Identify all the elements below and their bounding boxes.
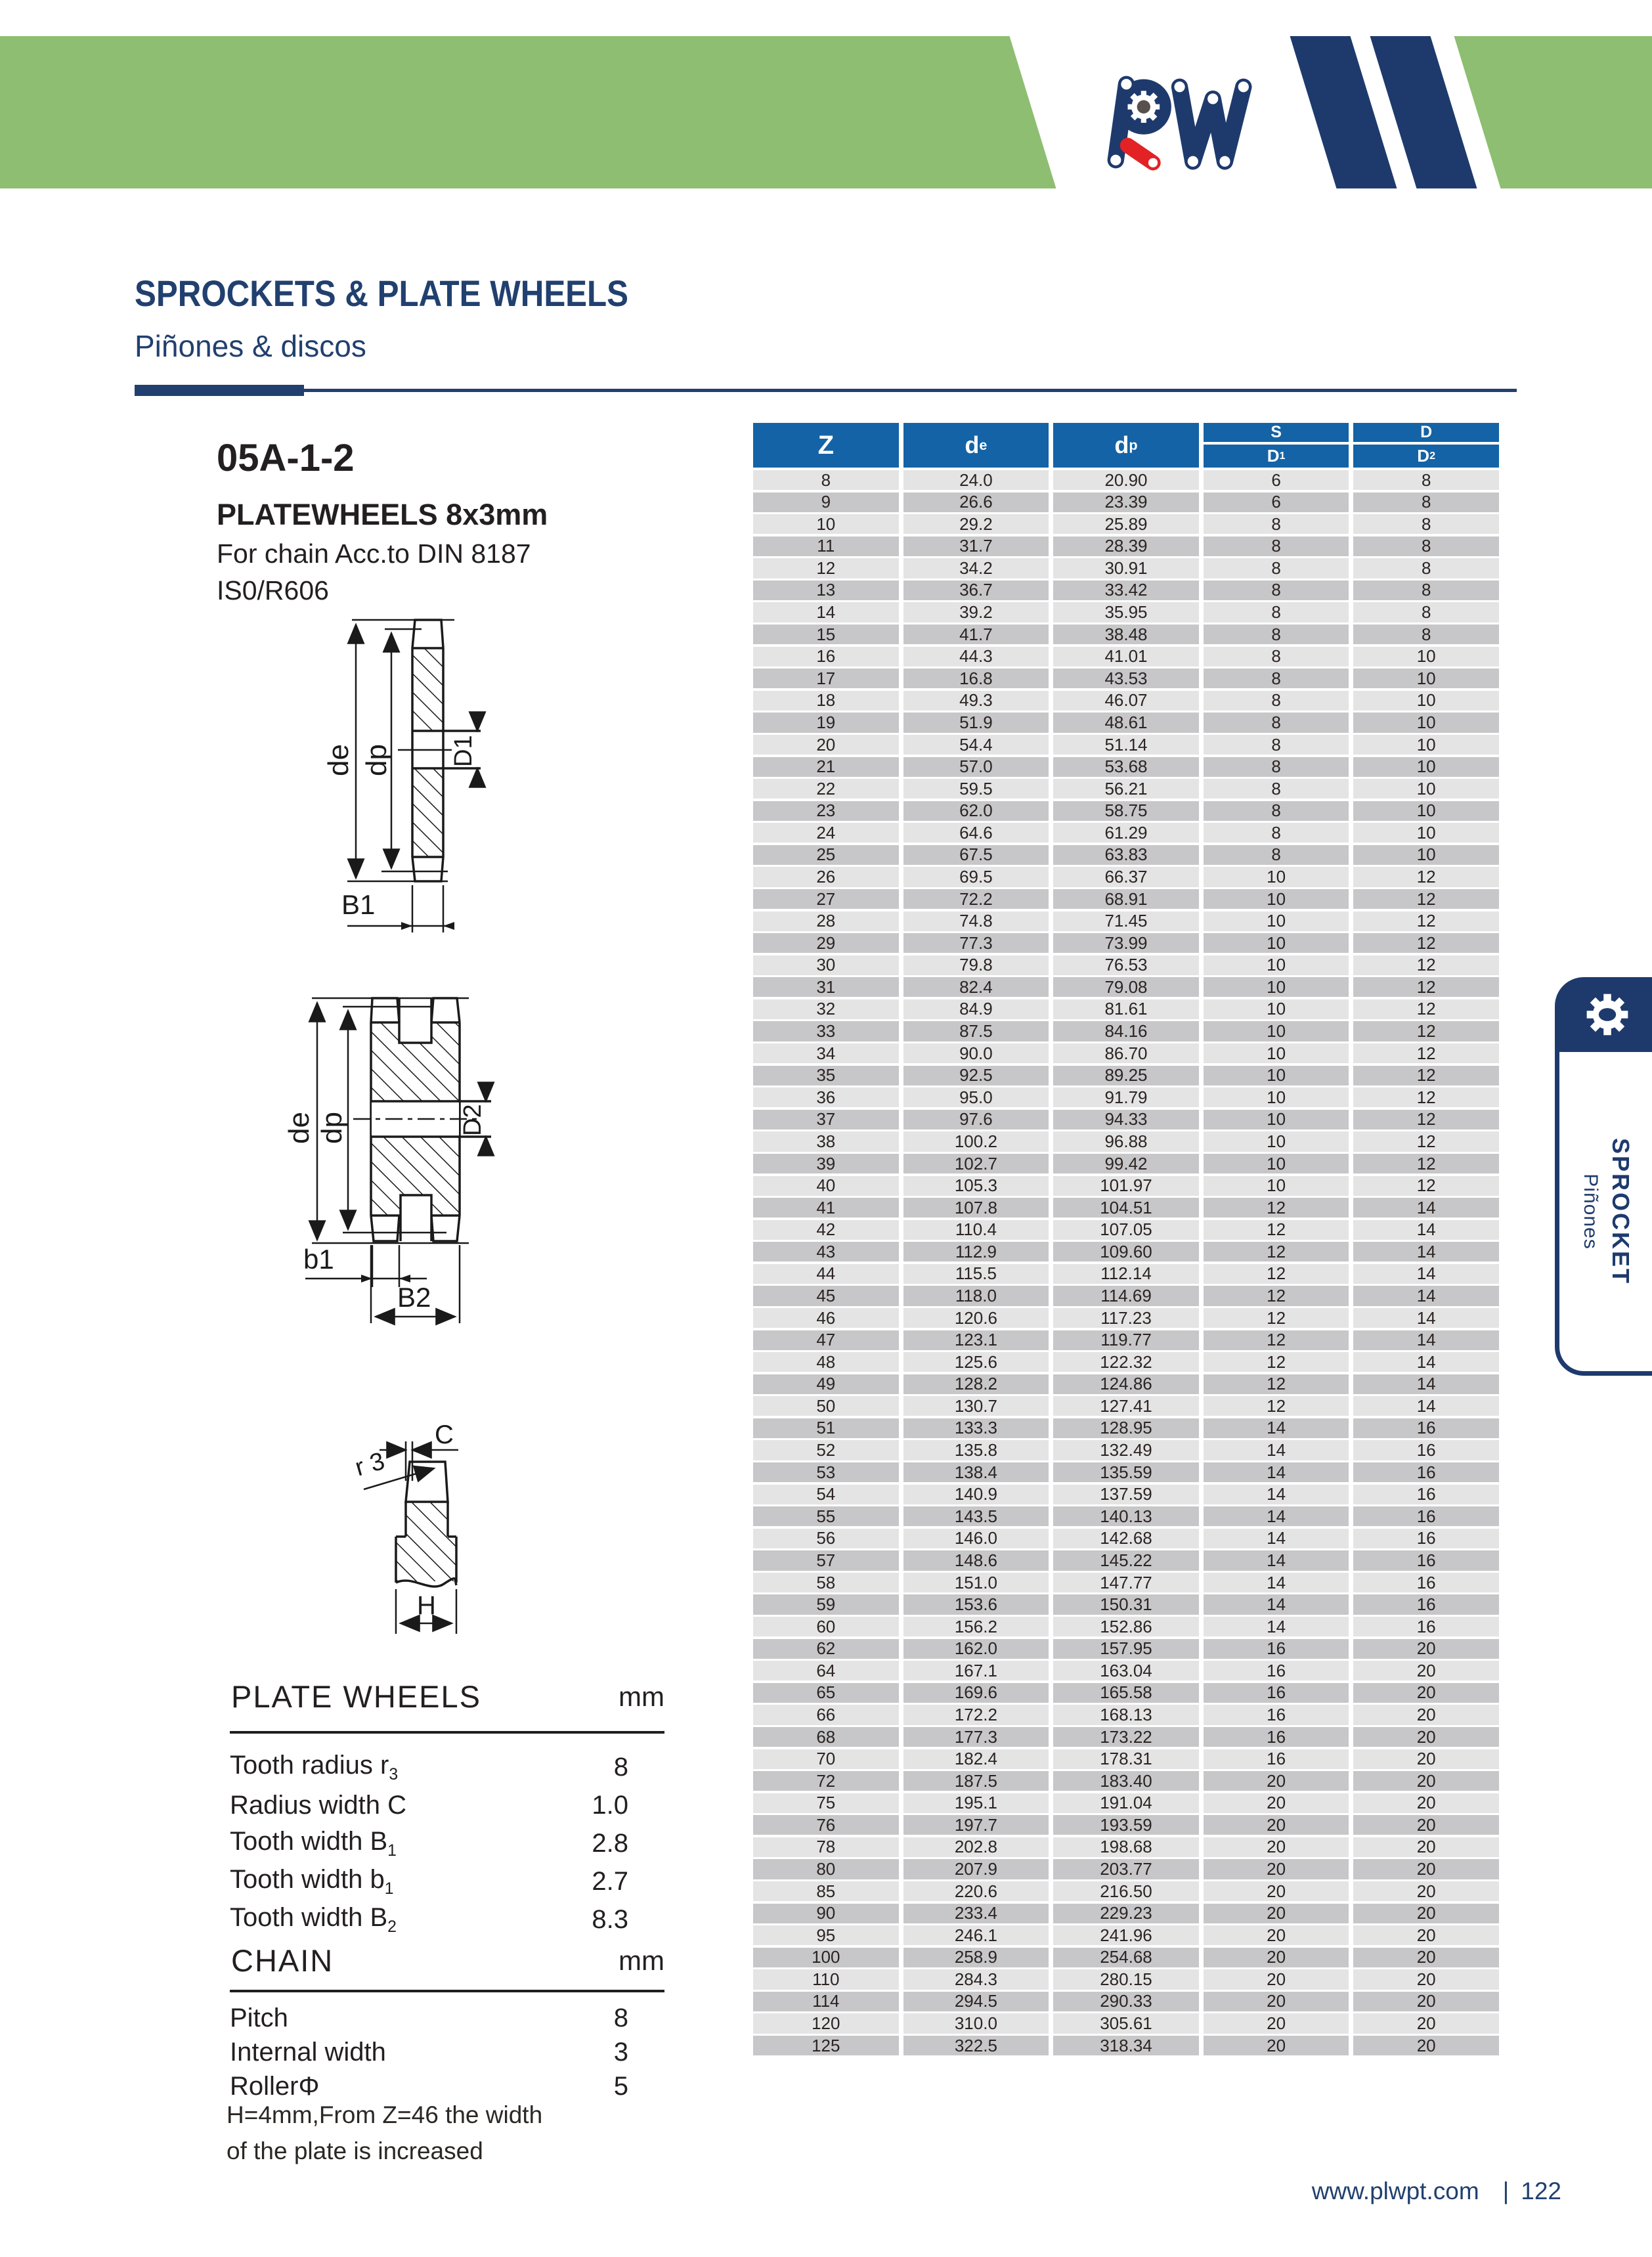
table-cell: 8 [1204,801,1349,821]
table-cell: 10 [1353,691,1499,711]
table-cell: 8 [1204,668,1349,688]
table-cell: 20 [1204,1771,1349,1791]
sidebar-tab-sprocket[interactable]: SPROCKET Piñones [1555,977,1652,1376]
table-cell: 16 [1204,1639,1349,1659]
table-cell: 20 [1353,1969,1499,1989]
table-row: 45118.0114.691214 [753,1286,1499,1305]
table-cell: 290.33 [1053,1992,1199,2011]
table-cell: 100.2 [903,1131,1049,1151]
table-cell: 35 [753,1066,899,1085]
header-s: S [1204,423,1349,442]
table-cell: 84.16 [1053,1021,1199,1041]
table-cell: 30 [753,955,899,975]
table-cell: 20 [753,735,899,755]
table-cell: 28 [753,911,899,931]
table-cell: 62.0 [903,801,1049,821]
product-code: 05A-1-2 [217,436,355,480]
table-cell: 18 [753,691,899,711]
table-cell: 157.95 [1053,1639,1199,1659]
table-cell: 258.9 [903,1948,1049,1967]
table-cell: 10 [1353,823,1499,843]
table-cell: 12 [1204,1330,1349,1350]
table-cell: 147.77 [1053,1573,1199,1592]
table-cell: 305.61 [1053,2013,1199,2033]
spec-label: Internal width [230,2038,386,2067]
table-cell: 100 [753,1948,899,1967]
dim-label-de: de [322,744,355,776]
table-cell: 163.04 [1053,1661,1199,1680]
table-cell: 120.6 [903,1308,1049,1328]
table-cell: 20 [1204,1815,1349,1835]
table-cell: 90.0 [903,1043,1049,1063]
table-cell: 14 [1204,1462,1349,1482]
table-cell: 95 [753,1925,899,1945]
table-cell: 12 [1353,1176,1499,1196]
table-row: 51133.3128.951416 [753,1418,1499,1438]
table-cell: 16 [1353,1529,1499,1548]
table-cell: 112.14 [1053,1264,1199,1284]
table-cell: 8 [1353,537,1499,556]
table-cell: 14 [1353,1308,1499,1328]
column-header-dp: dp [1053,423,1199,468]
spec-value: 8 [614,2004,664,2033]
table-cell: 14 [1353,1352,1499,1372]
table-cell: 10 [1353,668,1499,688]
table-cell: 26.6 [903,493,1049,512]
table-row: 70182.4178.311620 [753,1749,1499,1769]
table-cell: 73.99 [1053,933,1199,953]
table-row: 110284.3280.152020 [753,1969,1499,1989]
spec-label: Tooth width B2 [230,1903,397,1937]
table-cell: 20 [1353,1639,1499,1659]
table-row: 3695.091.791012 [753,1087,1499,1107]
dim-label-c: C [435,1420,454,1449]
table-row: 95246.1241.962020 [753,1925,1499,1945]
table-cell: 76.53 [1053,955,1199,975]
table-row: 1234.230.9188 [753,558,1499,578]
table-cell: 8 [1204,735,1349,755]
spec-row: Pitch8 [230,1999,664,2037]
table-row: 76197.7193.592020 [753,1815,1499,1835]
brand-logo [1098,72,1308,172]
page-subtitle: Piñones & discos [135,328,366,364]
spec-row: Tooth width B28.3 [230,1900,664,1939]
table-cell: 41.7 [903,625,1049,644]
double-sprocket-drawing: de dp D2 b1 B2 [250,985,578,1392]
table-cell: 31.7 [903,537,1049,556]
table-cell: 32 [753,999,899,1019]
table-cell: 8 [1353,493,1499,512]
table-cell: 20 [1353,2013,1499,2033]
spec-row: Tooth radius r38 [230,1748,664,1786]
table-cell: 12 [1353,1110,1499,1129]
table-cell: 47 [753,1330,899,1350]
table-cell: 64 [753,1661,899,1680]
table-row: 64167.1163.041620 [753,1661,1499,1680]
table-cell: 10 [1204,1154,1349,1173]
table-cell: 36.7 [903,581,1049,600]
table-cell: 20 [1204,1793,1349,1813]
table-cell: 143.5 [903,1506,1049,1526]
table-cell: 241.96 [1053,1925,1199,1945]
table-cell: 20 [1204,1904,1349,1923]
table-row: 3797.694.331012 [753,1110,1499,1129]
table-cell: 16 [1353,1418,1499,1438]
table-cell: 38 [753,1131,899,1151]
table-cell: 14 [1204,1440,1349,1460]
table-row: 41107.8104.511214 [753,1198,1499,1217]
table-cell: 20 [1353,1881,1499,1901]
table-row: 120310.0305.612020 [753,2013,1499,2033]
spec-label: RollerΦ [230,2072,319,2101]
sidebar-tab-subtitle: Piñones [1579,1173,1601,1249]
table-cell: 12 [1353,867,1499,887]
table-cell: 57 [753,1550,899,1570]
table-row: 1951.948.61810 [753,712,1499,732]
table-cell: 60 [753,1617,899,1636]
dim-label-h: H [417,1591,436,1620]
table-row: 114294.5290.332020 [753,1992,1499,2011]
table-cell: 14 [1204,1529,1349,1548]
table-row: 47123.1119.771214 [753,1330,1499,1350]
spec-row: Internal width3 [230,2033,664,2071]
table-cell: 20 [1353,1904,1499,1923]
table-cell: 20 [1353,1771,1499,1791]
table-cell: 168.13 [1053,1705,1199,1724]
table-cell: 10 [1204,999,1349,1019]
table-cell: 29 [753,933,899,953]
table-row: 1029.225.8988 [753,514,1499,534]
table-cell: 51.14 [1053,735,1199,755]
table-cell: 310.0 [903,2013,1049,2033]
table-cell: 94.33 [1053,1110,1199,1129]
table-cell: 10 [1204,867,1349,887]
table-row: 48125.6122.321214 [753,1352,1499,1372]
table-cell: 16 [1353,1440,1499,1460]
table-cell: 203.77 [1053,1859,1199,1879]
table-cell: 14 [1204,1506,1349,1526]
column-header-z: Z [753,423,899,468]
table-row: 72187.5183.402020 [753,1771,1499,1791]
table-cell: 17 [753,668,899,688]
footer-page-number: 122 [1521,2178,1561,2204]
table-cell: 8 [1353,602,1499,622]
table-cell: 16 [1353,1462,1499,1482]
table-cell: 105.3 [903,1176,1049,1196]
table-row: 57148.6145.221416 [753,1550,1499,1570]
table-cell: 10 [1204,1043,1349,1063]
single-sprocket-drawing: de dp D1 B1 [250,604,578,985]
table-cell: 8 [1204,514,1349,534]
table-cell: 10 [1204,955,1349,975]
table-row: 3387.584.161012 [753,1021,1499,1041]
header-d1: D1 [1204,445,1349,468]
table-row: 100258.9254.682020 [753,1948,1499,1967]
table-cell: 220.6 [903,1881,1049,1901]
table-row: 1849.346.07810 [753,691,1499,711]
table-cell: 135.8 [903,1440,1049,1460]
table-cell: 12 [1353,889,1499,909]
table-cell: 14 [1204,1573,1349,1592]
table-cell: 90 [753,1904,899,1923]
table-row: 42110.4107.051214 [753,1220,1499,1240]
table-cell: 8 [1204,602,1349,622]
table-cell: 20 [1353,1749,1499,1769]
table-cell: 197.7 [903,1815,1049,1835]
table-cell: 43.53 [1053,668,1199,688]
spec-label: Tooth width b1 [230,1865,394,1898]
table-cell: 10 [1204,1087,1349,1107]
table-cell: 20 [1204,2036,1349,2055]
table-cell: 14 [1353,1242,1499,1261]
table-cell: 198.68 [1053,1837,1199,1857]
table-cell: 12 [1353,999,1499,1019]
table-cell: 45 [753,1286,899,1305]
product-name: PLATEWHEELS 8x3mm [217,498,548,532]
table-cell: 150.31 [1053,1594,1199,1614]
dim-label-r3: r 3 [352,1447,387,1482]
table-cell: 16 [1204,1661,1349,1680]
dim-label-dp: dp [316,1112,348,1144]
table-cell: 85 [753,1881,899,1901]
table-cell: 66 [753,1705,899,1724]
table-cell: 12 [1353,933,1499,953]
table-cell: 216.50 [1053,1881,1199,1901]
table-cell: 16 [753,647,899,667]
table-row: 3284.981.611012 [753,999,1499,1019]
table-cell: 81.61 [1053,999,1199,1019]
table-cell: 8 [1204,823,1349,843]
table-cell: 48 [753,1352,899,1372]
table-cell: 27 [753,889,899,909]
spec-value: 1.0 [592,1791,664,1820]
table-cell: 16 [1353,1573,1499,1592]
table-row: 54140.9137.591416 [753,1485,1499,1504]
table-cell: 127.41 [1053,1396,1199,1416]
table-cell: 12 [1204,1264,1349,1284]
table-row: 40105.3101.971012 [753,1176,1499,1196]
table-cell: 12 [1204,1396,1349,1416]
table-cell: 20 [1353,2036,1499,2055]
table-cell: 34 [753,1043,899,1063]
table-cell: 22 [753,779,899,799]
footer-url[interactable]: www.plwpt.com [1312,2178,1479,2204]
spec-label: Tooth radius r3 [230,1751,398,1784]
table-row: 2772.268.911012 [753,889,1499,909]
table-cell: 99.42 [1053,1154,1199,1173]
table-cell: 14 [1353,1396,1499,1416]
table-cell: 97.6 [903,1110,1049,1129]
table-cell: 9 [753,493,899,512]
table-cell: 67.5 [903,845,1049,865]
table-cell: 6 [1204,493,1349,512]
table-cell: 145.22 [1053,1550,1199,1570]
table-cell: 53 [753,1462,899,1482]
catalog-page: SPROCKETS & PLATE WHEELS Piñones & disco… [0,0,1652,2257]
table-cell: 156.2 [903,1617,1049,1636]
header-de-sub: e [979,437,987,454]
header-dp-base: d [1114,431,1129,459]
table-cell: 8 [1353,558,1499,578]
table-cell: 207.9 [903,1859,1049,1879]
table-cell: 294.5 [903,1992,1049,2011]
table-cell: 21 [753,757,899,777]
table-cell: 95.0 [903,1087,1049,1107]
table-cell: 70 [753,1749,899,1769]
table-cell: 20 [1353,1992,1499,2011]
table-cell: 8 [1353,514,1499,534]
table-row: 43112.9109.601214 [753,1242,1499,1261]
table-cell: 280.15 [1053,1969,1199,1989]
table-cell: 195.1 [903,1793,1049,1813]
table-cell: 12 [1353,1154,1499,1173]
table-row: 1644.341.01810 [753,647,1499,667]
table-cell: 30.91 [1053,558,1199,578]
dim-label-de: de [283,1112,315,1144]
table-cell: 8 [1204,845,1349,865]
tooth-profile-drawing: C r 3 H [295,1405,558,1681]
table-cell: 16 [1353,1550,1499,1570]
table-cell: 49 [753,1374,899,1394]
table-cell: 10 [1204,1131,1349,1151]
title-rule-thin [302,389,1517,392]
spec-value: 2.7 [592,1867,664,1896]
table-cell: 109.60 [1053,1242,1199,1261]
table-cell: 31 [753,977,899,997]
dim-label-dp: dp [360,744,393,776]
table-cell: 33 [753,1021,899,1041]
table-row: 38100.296.881012 [753,1131,1499,1151]
table-row: 926.623.3968 [753,493,1499,512]
table-cell: 54 [753,1485,899,1504]
table-row: 2362.058.75810 [753,801,1499,821]
table-cell: 151.0 [903,1573,1049,1592]
table-row: 66172.2168.131620 [753,1705,1499,1724]
table-row: 46120.6117.231214 [753,1308,1499,1328]
table-cell: 318.34 [1053,2036,1199,2055]
table-cell: 79.8 [903,955,1049,975]
sidebar-tab-title: SPROCKET [1607,1138,1634,1285]
table-cell: 24.0 [903,470,1049,490]
table-cell: 12 [1204,1242,1349,1261]
table-cell: 132.49 [1053,1440,1199,1460]
table-cell: 48.61 [1053,712,1199,732]
table-cell: 117.23 [1053,1308,1199,1328]
table-cell: 10 [753,514,899,534]
sidebar-tab-body: SPROCKET Piñones [1555,1052,1652,1376]
table-cell: 41.01 [1053,647,1199,667]
table-cell: 162.0 [903,1639,1049,1659]
table-row: 2054.451.14810 [753,735,1499,755]
table-cell: 39 [753,1154,899,1173]
table-cell: 167.1 [903,1661,1049,1680]
chain-unit: mm [586,1945,664,1977]
table-cell: 20 [1353,1837,1499,1857]
table-cell: 26 [753,867,899,887]
table-cell: 89.25 [1053,1066,1199,1085]
table-cell: 169.6 [903,1683,1049,1703]
chain-title: CHAIN [231,1942,334,1979]
plate-wheels-rule [230,1731,664,1734]
table-cell: 122.32 [1053,1352,1199,1372]
table-cell: 16 [1353,1506,1499,1526]
table-cell: 120 [753,2013,899,2033]
table-cell: 59 [753,1594,899,1614]
table-cell: 69.5 [903,867,1049,887]
table-cell: 64.6 [903,823,1049,843]
table-cell: 173.22 [1053,1727,1199,1747]
table-row: 2157.053.68810 [753,757,1499,777]
table-cell: 284.3 [903,1969,1049,1989]
table-cell: 42 [753,1220,899,1240]
table-cell: 142.68 [1053,1529,1199,1548]
table-cell: 20 [1204,1948,1349,1967]
table-cell: 10 [1353,779,1499,799]
table-cell: 10 [1204,933,1349,953]
sidebar-tab-head [1555,977,1652,1052]
table-cell: 56.21 [1053,779,1199,799]
table-cell: 13 [753,581,899,600]
table-cell: 8 [1204,625,1349,644]
table-cell: 8 [1204,757,1349,777]
table-cell: 8 [1204,779,1349,799]
table-row: 49128.2124.861214 [753,1374,1499,1394]
table-cell: 52 [753,1440,899,1460]
table-cell: 12 [1353,1131,1499,1151]
spec-row: RollerΦ5 [230,2067,664,2105]
table-cell: 112.9 [903,1242,1049,1261]
table-cell: 20 [1353,1661,1499,1680]
table-cell: 233.4 [903,1904,1049,1923]
table-cell: 10 [1353,735,1499,755]
table-row: 2874.871.451012 [753,911,1499,931]
table-cell: 49.3 [903,691,1049,711]
table-cell: 246.1 [903,1925,1049,1945]
table-cell: 36 [753,1087,899,1107]
table-cell: 68 [753,1727,899,1747]
spec-value: 8 [614,1753,664,1782]
table-cell: 8 [1204,558,1349,578]
table-cell: 80 [753,1859,899,1879]
table-row: 1439.235.9588 [753,602,1499,622]
table-cell: 202.8 [903,1837,1049,1857]
table-cell: 25 [753,845,899,865]
table-cell: 8 [1204,537,1349,556]
header-d1-base: D [1267,446,1280,466]
table-cell: 14 [1204,1418,1349,1438]
table-row: 59153.6150.311416 [753,1594,1499,1614]
table-cell: 110 [753,1969,899,1989]
table-cell: 72.2 [903,889,1049,909]
table-row: 3182.479.081012 [753,977,1499,997]
table-cell: 58.75 [1053,801,1199,821]
header-de-base: d [965,431,979,459]
table-cell: 15 [753,625,899,644]
table-cell: 62 [753,1639,899,1659]
table-row: 44115.5112.141214 [753,1264,1499,1284]
table-cell: 107.8 [903,1198,1049,1217]
table-cell: 8 [1204,581,1349,600]
table-cell: 114.69 [1053,1286,1199,1305]
table-cell: 14 [1353,1374,1499,1394]
table-cell: 14 [1353,1220,1499,1240]
table-cell: 148.6 [903,1550,1049,1570]
table-cell: 20 [1353,1948,1499,1967]
table-row: 56146.0142.681416 [753,1529,1499,1548]
spec-value: 5 [614,2072,664,2101]
table-cell: 54.4 [903,735,1049,755]
table-cell: 20 [1353,1793,1499,1813]
